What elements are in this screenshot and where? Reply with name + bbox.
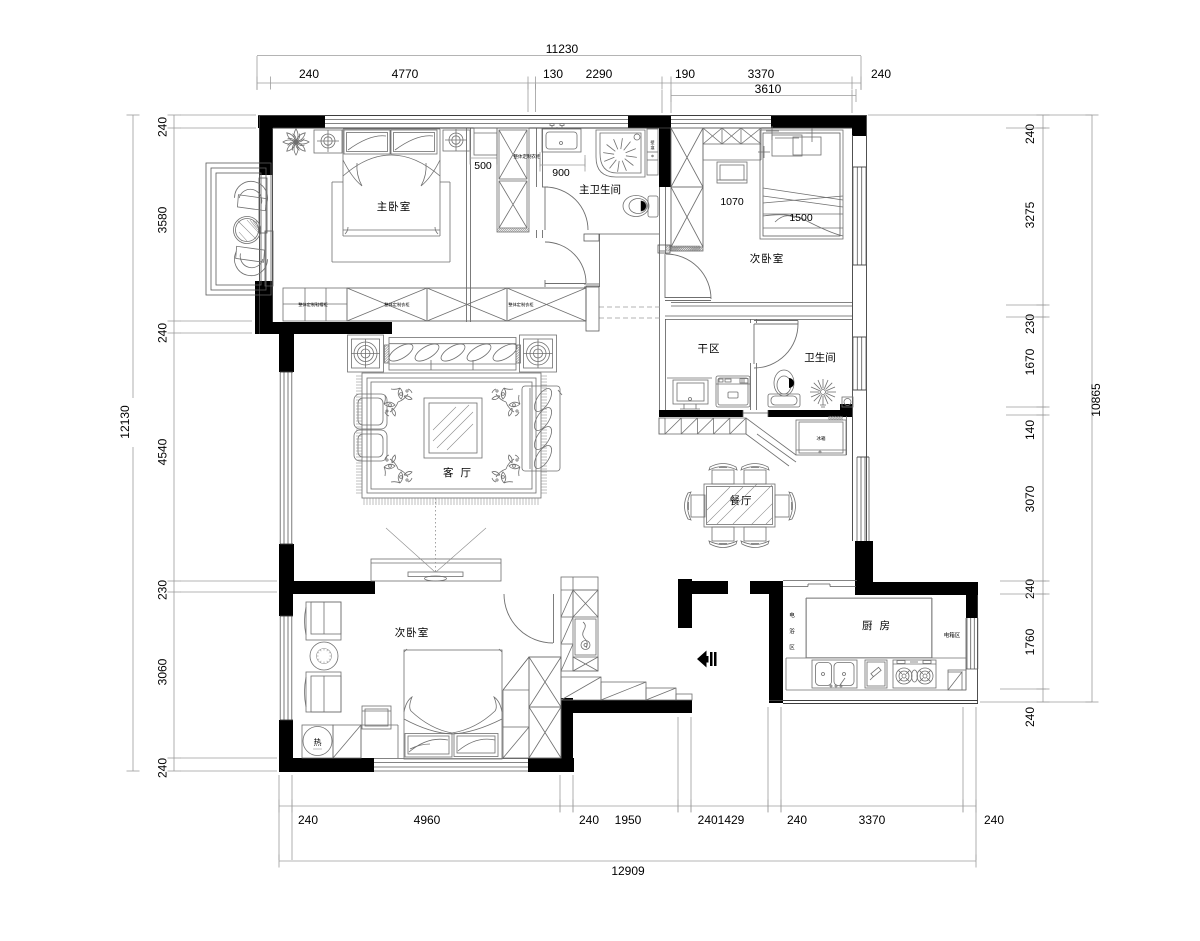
svg-text:3370: 3370 [748,67,775,81]
svg-text:整体定制鞋帽柜: 整体定制鞋帽柜 [298,301,327,308]
svg-text:3275: 3275 [1023,201,1037,228]
svg-text:4540: 4540 [156,438,170,465]
svg-text:500: 500 [474,160,492,172]
svg-text:3610: 3610 [755,82,782,96]
svg-text:1950: 1950 [615,813,642,827]
svg-text:240: 240 [1023,124,1037,144]
svg-text:240: 240 [156,117,170,137]
svg-text:240: 240 [984,813,1004,827]
svg-text:240: 240 [156,758,170,778]
svg-text:10865: 10865 [1089,383,1103,417]
svg-text:900: 900 [552,167,570,179]
svg-text:240: 240 [1023,579,1037,599]
svg-text:客 厅: 客 厅 [443,466,473,479]
svg-text:240: 240 [299,67,319,81]
svg-text:整体定制衣柜: 整体定制衣柜 [514,153,541,160]
svg-text:主卧室: 主卧室 [377,200,412,213]
svg-text:次卧室: 次卧室 [750,252,785,265]
svg-text:240: 240 [1023,707,1037,727]
svg-text:2401429: 2401429 [698,813,745,827]
svg-text:电箱区: 电箱区 [944,631,961,639]
svg-text:1670: 1670 [1023,348,1037,375]
svg-text:整体定制衣柜: 整体定制衣柜 [384,301,409,308]
svg-text:热: 热 [314,737,322,747]
svg-text:整体定制衣柜: 整体定制衣柜 [508,301,533,308]
svg-text:4960: 4960 [414,813,441,827]
svg-text:冰箱: 冰箱 [817,435,826,442]
svg-text:240: 240 [871,67,891,81]
svg-text:4770: 4770 [392,67,419,81]
svg-text:干区: 干区 [698,343,721,355]
svg-text:240: 240 [787,813,807,827]
svg-text:240: 240 [298,813,318,827]
svg-text:1760: 1760 [1023,628,1037,655]
svg-text:240: 240 [579,813,599,827]
svg-text:主卫生间: 主卫生间 [579,183,621,196]
svg-text:次卧室: 次卧室 [395,626,430,639]
svg-text:3070: 3070 [1023,485,1037,512]
svg-text:190: 190 [675,67,695,81]
svg-text:12130: 12130 [118,405,132,439]
svg-text:2290: 2290 [586,67,613,81]
svg-text:浴: 浴 [789,627,795,635]
svg-text:卫生间: 卫生间 [804,351,836,364]
svg-text:140: 140 [1023,420,1037,440]
svg-text:3580: 3580 [156,206,170,233]
svg-text:3060: 3060 [156,658,170,685]
svg-text:电: 电 [789,611,795,619]
svg-text:厨 房: 厨 房 [862,619,892,632]
svg-text:3370: 3370 [859,813,886,827]
svg-text:1500: 1500 [789,212,813,224]
svg-text:11230: 11230 [546,42,579,56]
svg-text:餐厅: 餐厅 [730,494,753,507]
svg-text:230: 230 [156,580,170,600]
svg-text:240: 240 [156,323,170,343]
svg-text:12909: 12909 [611,864,645,878]
svg-text:130: 130 [543,67,563,81]
svg-text:龛: 龛 [651,144,655,150]
svg-text:1070: 1070 [720,196,744,208]
svg-text:区: 区 [789,644,795,651]
